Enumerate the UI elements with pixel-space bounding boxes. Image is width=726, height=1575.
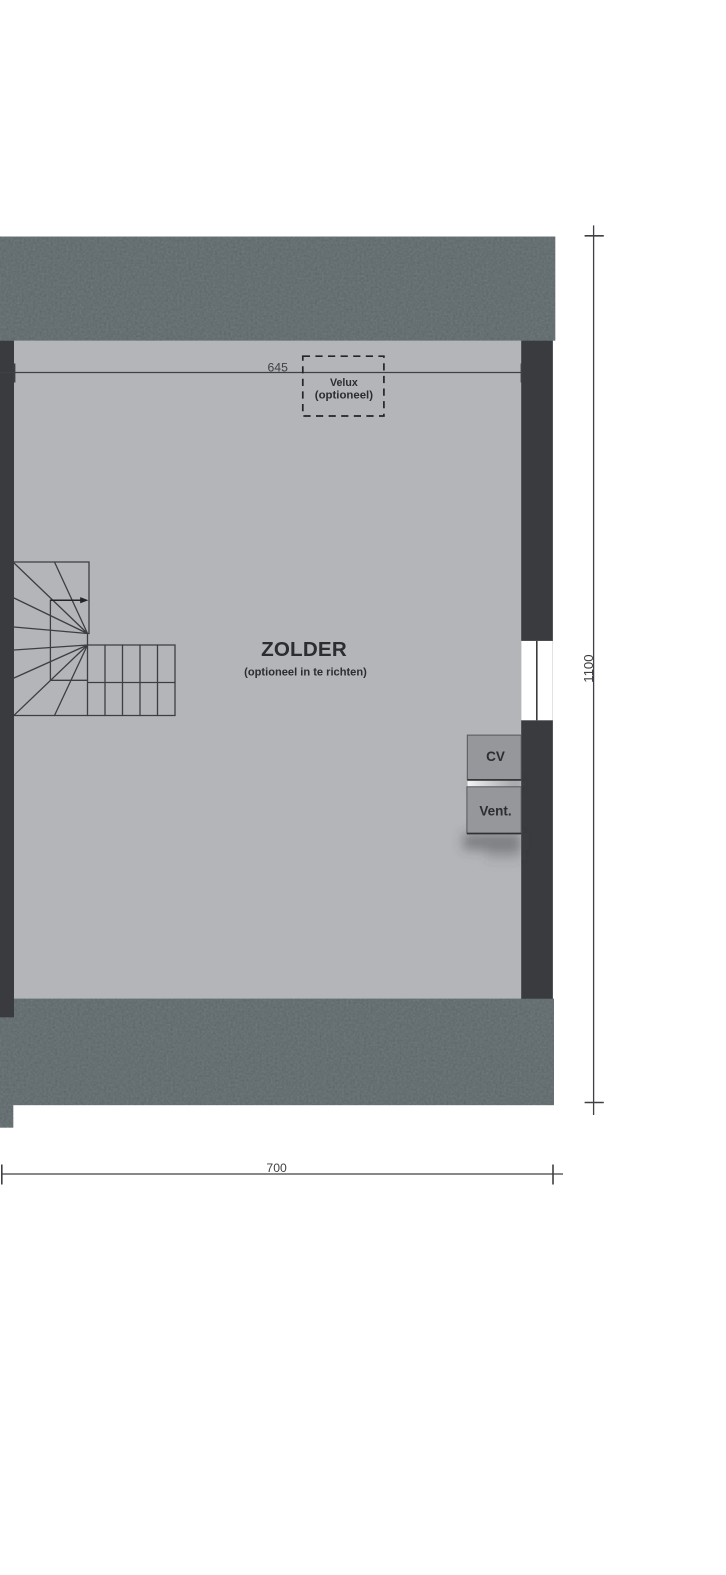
svg-text:645: 645: [268, 360, 289, 374]
svg-text:1100: 1100: [581, 654, 596, 682]
svg-text:(optioneel): (optioneel): [315, 389, 373, 401]
svg-text:Vent.: Vent.: [479, 804, 511, 819]
svg-text:700: 700: [266, 1161, 287, 1175]
svg-text:CV: CV: [486, 749, 505, 764]
svg-text:ZOLDER: ZOLDER: [261, 638, 347, 661]
svg-text:(optioneel in te richten): (optioneel in te richten): [244, 666, 367, 678]
svg-text:Velux: Velux: [330, 377, 358, 389]
